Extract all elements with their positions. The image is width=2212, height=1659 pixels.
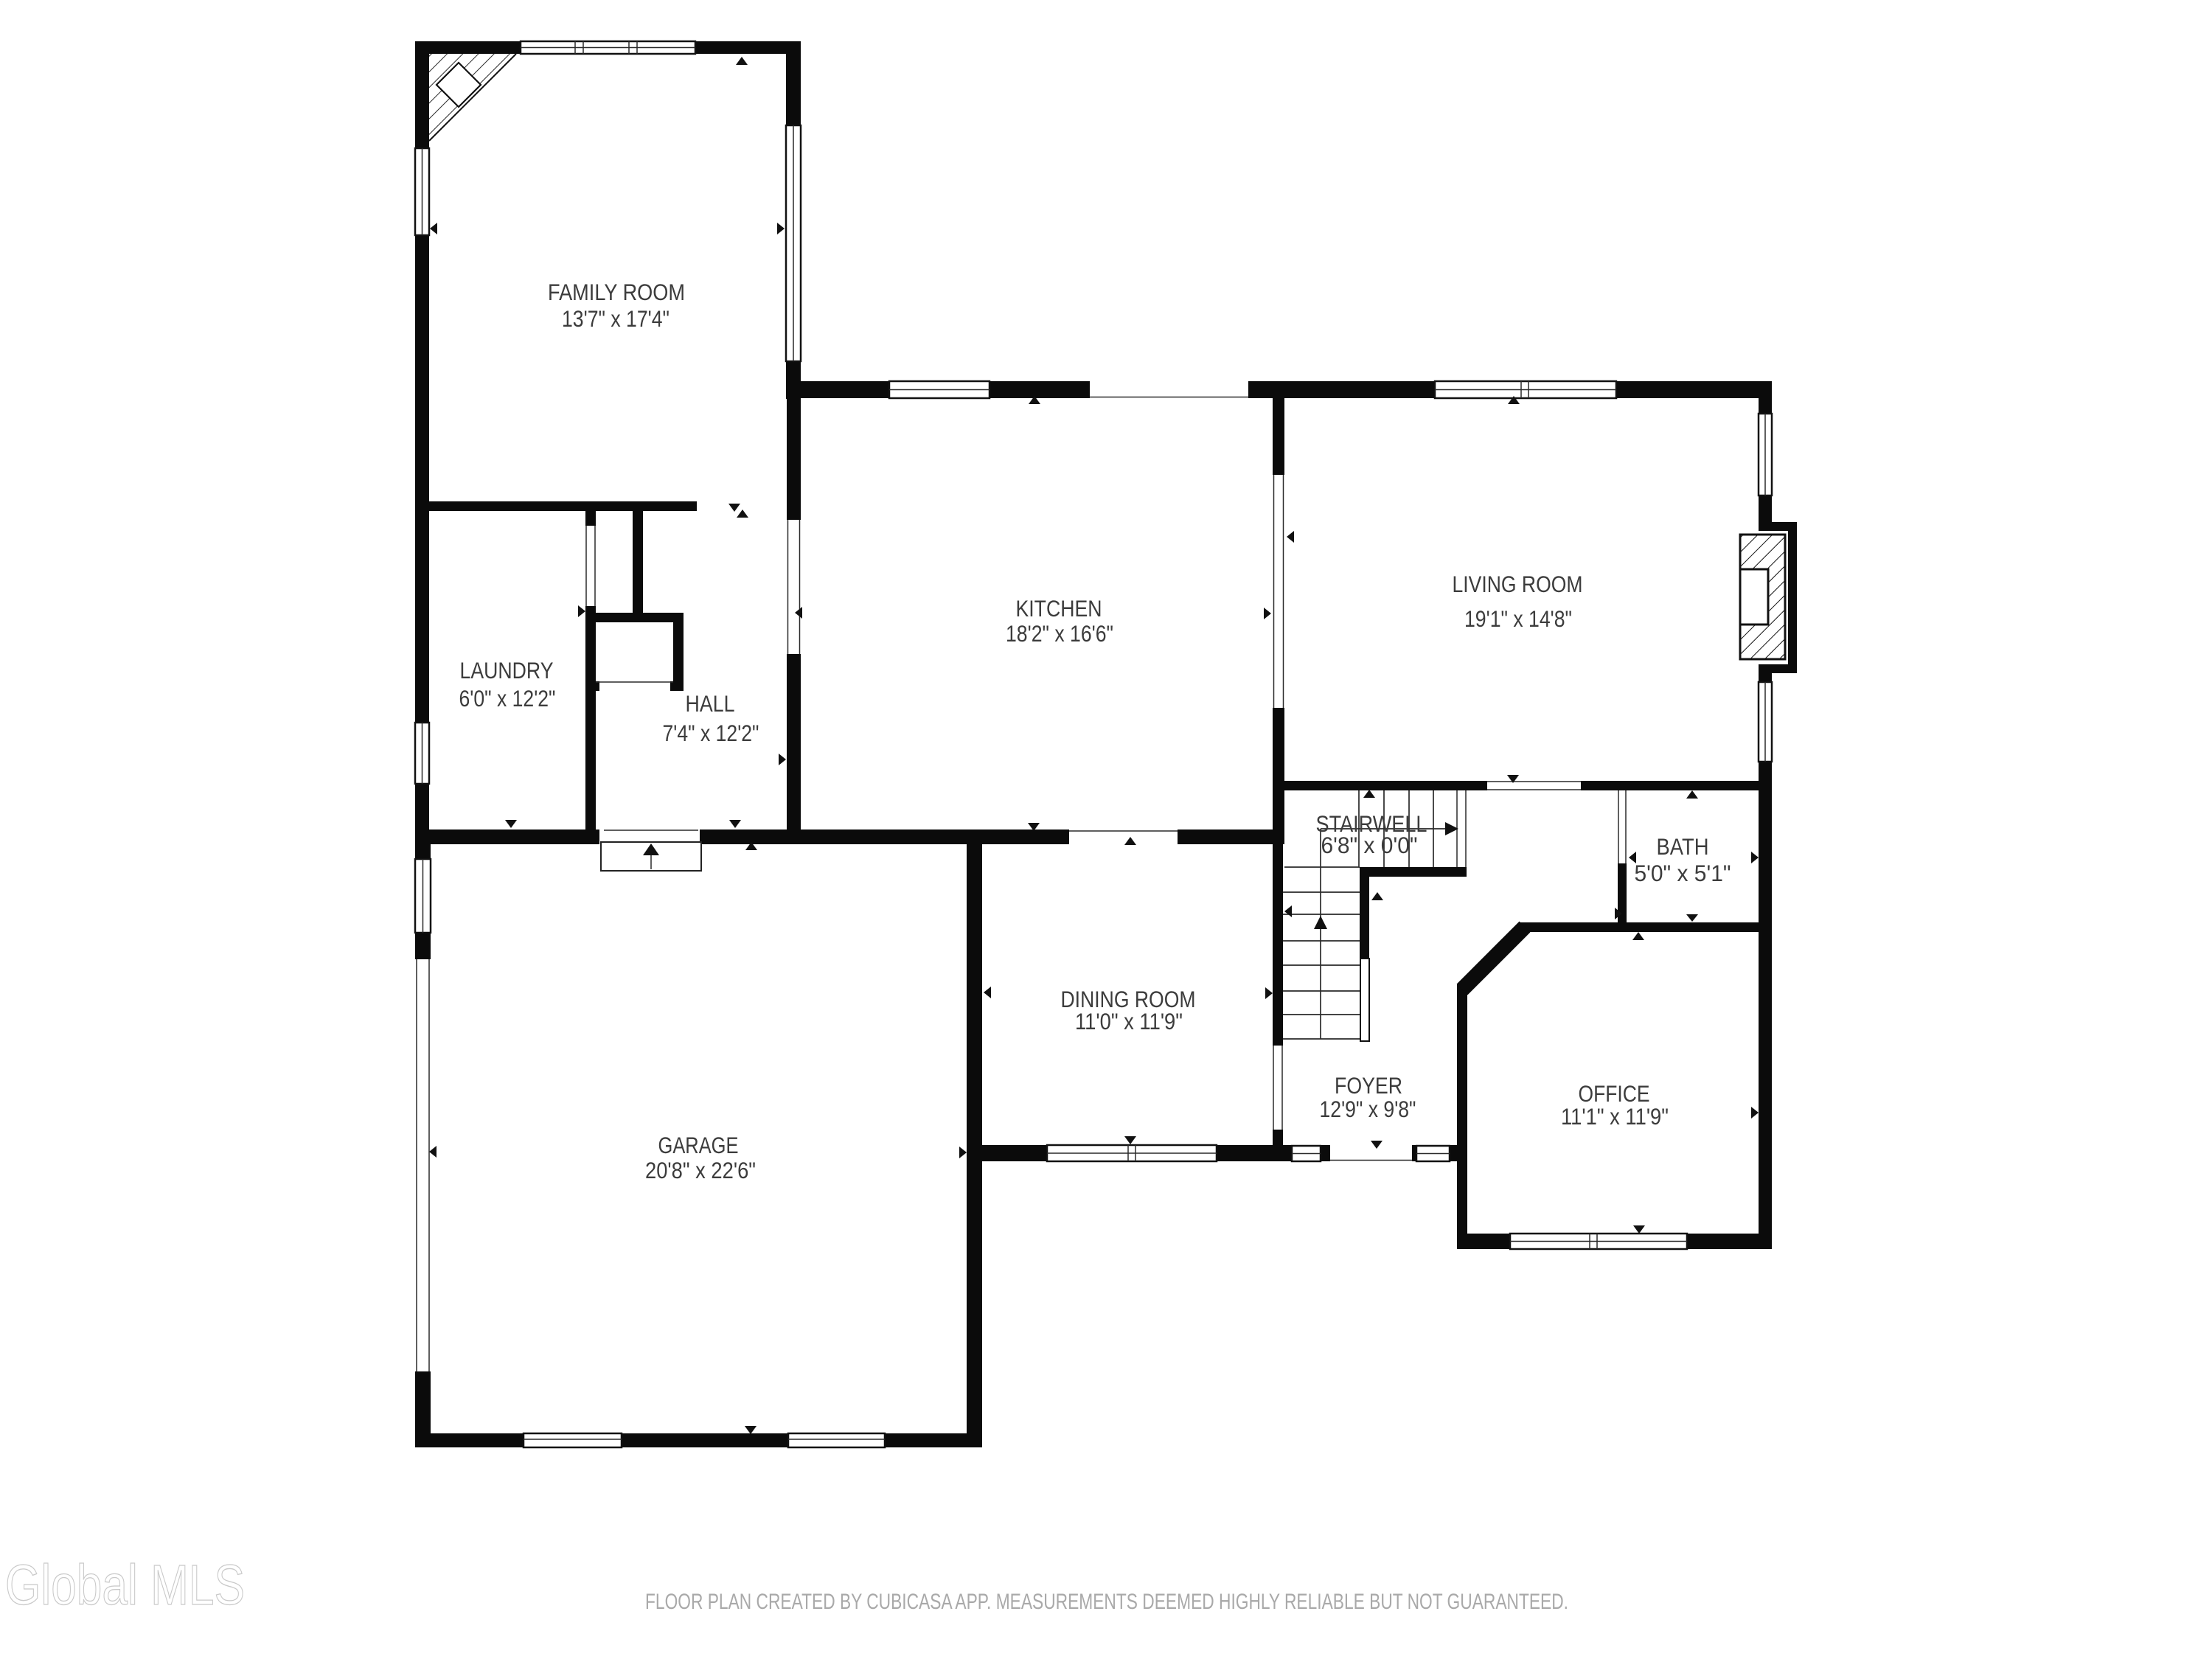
svg-text:KITCHEN: KITCHEN [1016,595,1102,622]
svg-text:12'9" x 9'8": 12'9" x 9'8" [1320,1096,1416,1122]
svg-text:20'8" x 22'6": 20'8" x 22'6" [645,1157,756,1183]
svg-text:FLOOR PLAN CREATED BY CUBICASA: FLOOR PLAN CREATED BY CUBICASA APP. MEAS… [645,1590,1568,1614]
svg-text:FOYER: FOYER [1335,1072,1402,1099]
svg-text:FAMILY ROOM: FAMILY ROOM [548,279,685,305]
svg-text:18'2" x 16'6": 18'2" x 16'6" [1006,620,1113,647]
svg-text:LAUNDRY: LAUNDRY [460,657,554,684]
svg-text:6'0" x 12'2": 6'0" x 12'2" [459,685,556,712]
svg-text:13'7" x 17'4": 13'7" x 17'4" [562,305,669,332]
svg-text:LIVING ROOM: LIVING ROOM [1453,571,1583,597]
svg-text:7'4" x 12'2": 7'4" x 12'2" [663,720,759,746]
svg-text:Global MLS: Global MLS [5,1554,245,1617]
svg-text:5'0" x 5'1": 5'0" x 5'1" [1635,860,1731,886]
svg-text:6'8" x 0'0": 6'8" x 0'0" [1321,832,1418,858]
svg-text:GARAGE: GARAGE [658,1132,739,1158]
svg-text:BATH: BATH [1657,833,1709,860]
svg-text:HALL: HALL [686,690,735,717]
svg-text:11'0" x 11'9": 11'0" x 11'9" [1075,1008,1183,1034]
svg-text:11'1" x 11'9": 11'1" x 11'9" [1561,1103,1669,1130]
svg-text:19'1" x 14'8": 19'1" x 14'8" [1464,605,1572,632]
